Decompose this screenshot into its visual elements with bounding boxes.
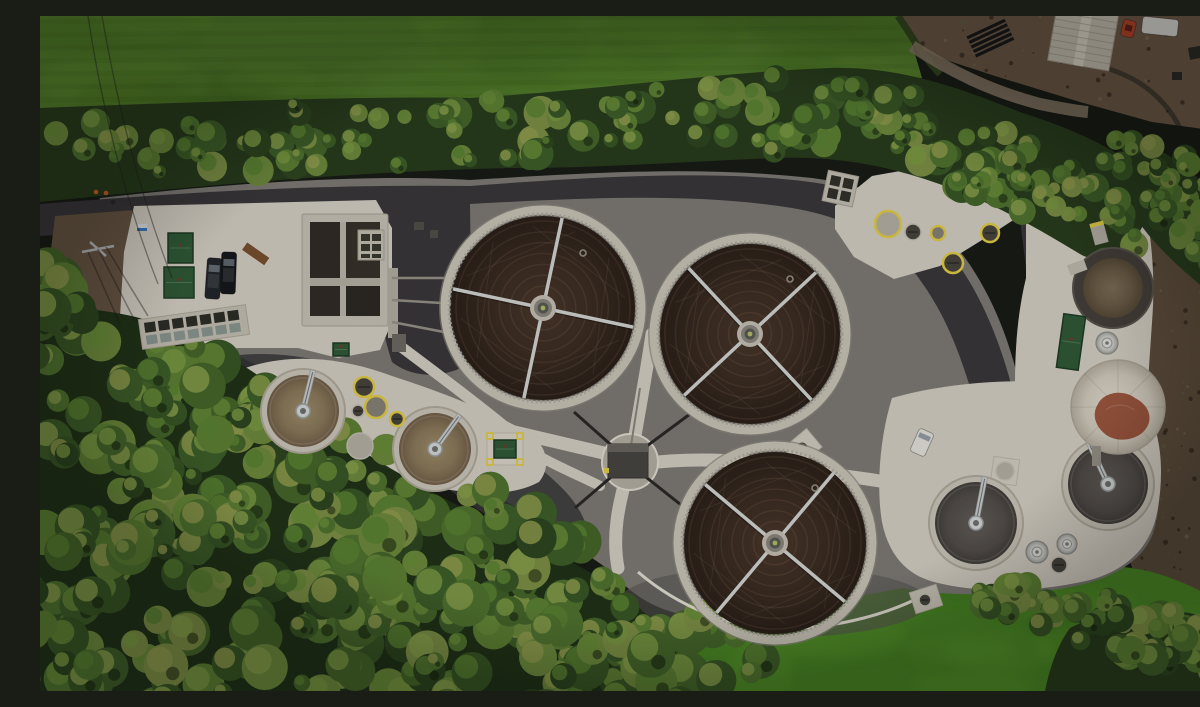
vignette-overlay — [40, 16, 1200, 691]
aerial-photo-canvas — [40, 16, 1200, 691]
aerial-photo-wastewater-treatment-works — [40, 16, 1200, 691]
